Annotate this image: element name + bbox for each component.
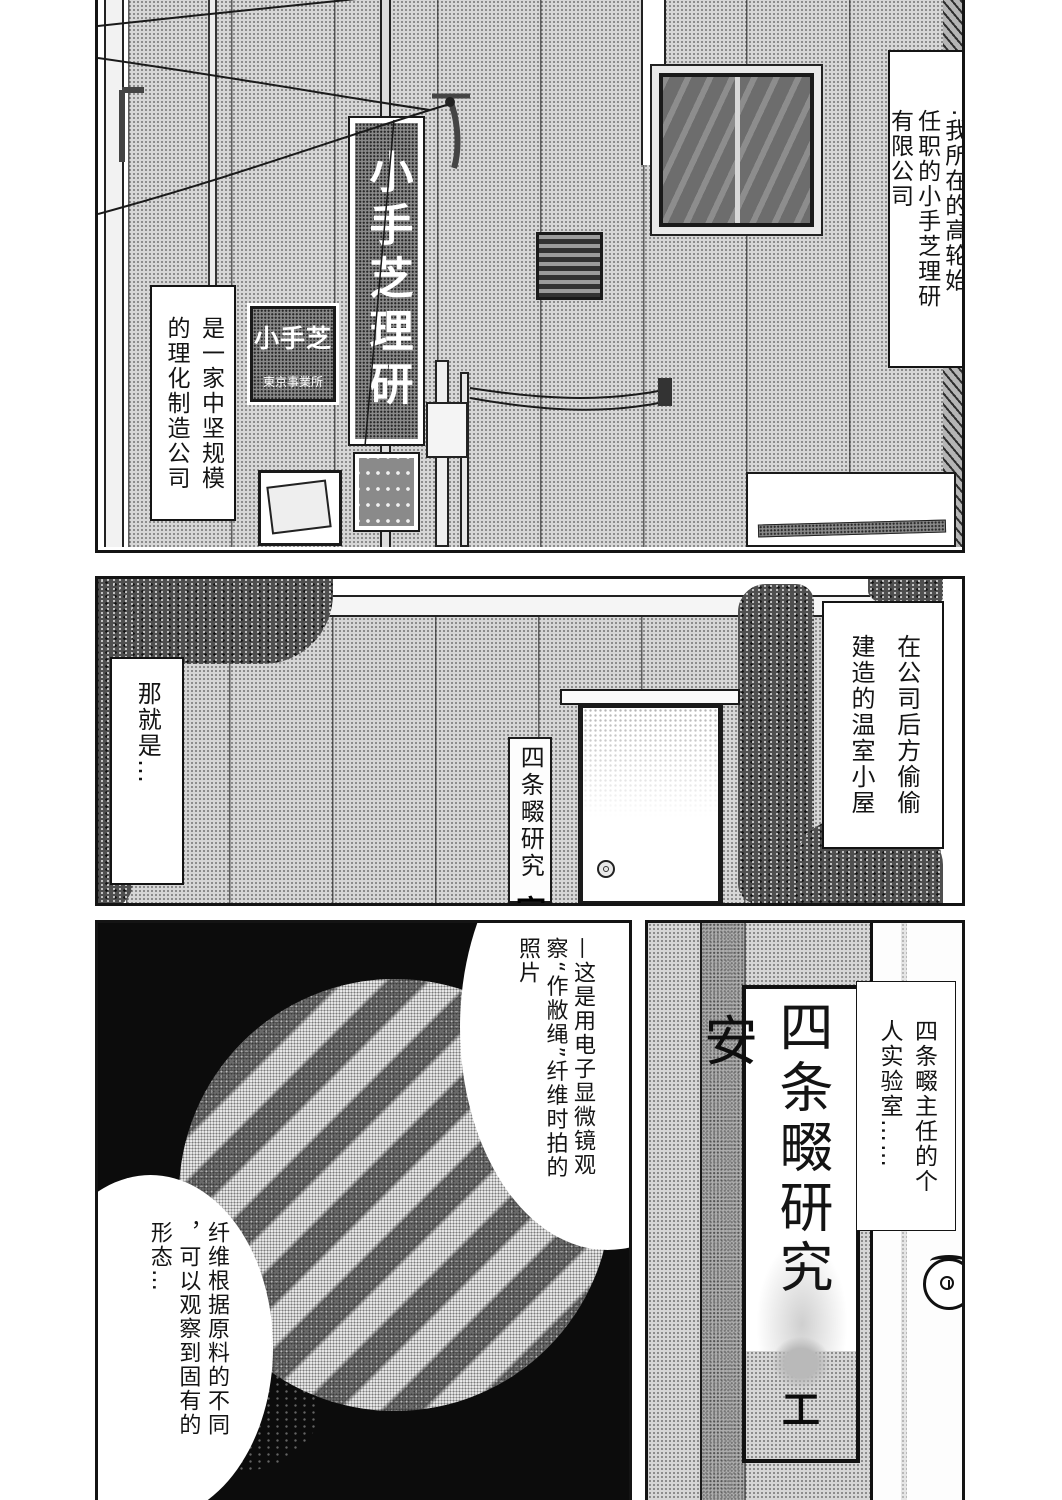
sign-bottom-section: 工	[746, 1351, 856, 1459]
caption-text: 四条畷主任的个 人实验室……	[872, 1019, 941, 1194]
panel-shed-exterior: 四条畷研究 室 在公司后方偷偷 建造的温室小屋 那就是…	[95, 576, 965, 906]
caption-box: 在公司后方偷偷 建造的温室小屋	[822, 601, 944, 849]
caption-text: 是一家中坚规模 的理化制造公司	[159, 316, 228, 491]
sign-bottom-char: 工	[746, 1379, 856, 1434]
caption-text: ·我所在的高轮始 任职的小手芝理研 有限公司	[885, 109, 965, 309]
caption-box: 那就是…	[110, 657, 184, 885]
wall-character: 安	[704, 997, 758, 1076]
caption-box: ·我所在的高轮始 任职的小手芝理研 有限公司	[888, 50, 964, 368]
panel-microscope: —这是用电子显微镜观 察“作敝绳”纤维时拍的 照片 纤维根据原料的不同 ，可以观…	[95, 920, 632, 1500]
panel-lab-door: 安 四条畷研究 工 四条畷主任的个 人实验室……	[645, 920, 965, 1500]
door-sign-text: 四条畷研究	[514, 745, 546, 880]
caption-box: 四条畷主任的个 人实验室……	[856, 981, 956, 1231]
bubble-text: —这是用电子显微镜观 察“作敝绳”纤维时拍的 照片	[478, 937, 596, 1227]
panel-street-exterior: 小手芝 東京事業所 小手芝理研	[95, 0, 965, 553]
shed-door	[578, 703, 723, 906]
door-sign-partial-char: 室	[516, 887, 546, 906]
caption-text: 那就是…	[131, 681, 163, 785]
caption-box: 是一家中坚规模 的理化制造公司	[150, 285, 236, 521]
doorknob	[597, 860, 615, 878]
caption-text: 在公司后方偷偷 建造的温室小屋	[837, 634, 928, 816]
door-sign-large-text: 四条畷研究	[774, 999, 828, 1299]
door-shading	[583, 708, 718, 818]
manga-page: { "colors": { "ink": "#141414", "paper":…	[0, 0, 1062, 1500]
door-sign-large: 四条畷研究 工	[742, 985, 860, 1463]
door-sign: 四条畷研究 室	[508, 737, 552, 903]
bubble-text: 纤维根据原料的不同 ，可以观察到固有的 形态…	[112, 1221, 230, 1491]
